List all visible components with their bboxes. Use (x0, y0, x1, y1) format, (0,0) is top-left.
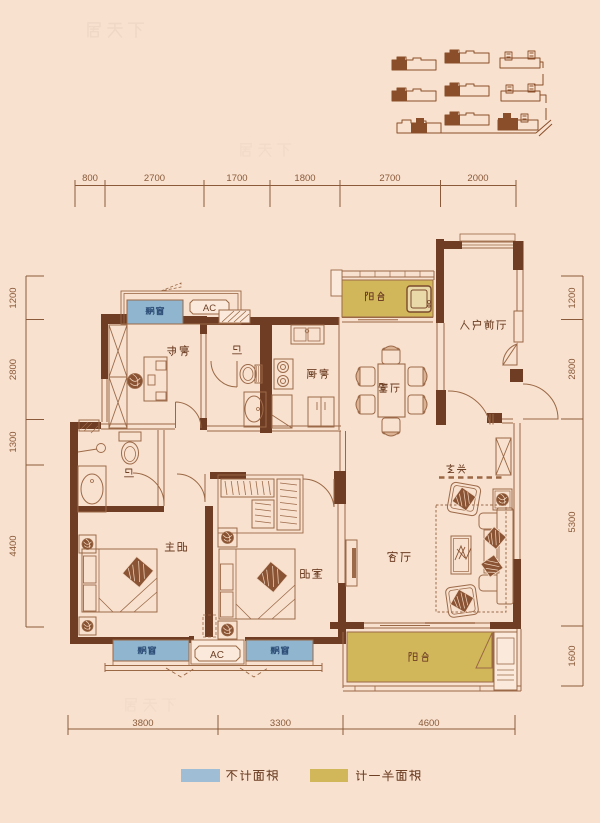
svg-text:1800: 1800 (294, 173, 315, 184)
svg-text:2800: 2800 (8, 359, 19, 380)
svg-text:2000: 2000 (467, 173, 488, 184)
svg-text:800: 800 (82, 173, 98, 184)
svg-text:AC: AC (210, 650, 224, 661)
svg-text:1600: 1600 (567, 645, 578, 666)
svg-text:2800: 2800 (567, 358, 578, 379)
svg-text:1200: 1200 (8, 287, 19, 308)
svg-text:1700: 1700 (226, 173, 247, 184)
svg-text:5300: 5300 (567, 511, 578, 532)
svg-text:2700: 2700 (379, 173, 400, 184)
svg-text:4600: 4600 (418, 718, 439, 729)
svg-text:2700: 2700 (144, 173, 165, 184)
svg-text:3800: 3800 (132, 718, 153, 729)
svg-text:1200: 1200 (567, 287, 578, 308)
svg-text:1300: 1300 (8, 431, 19, 452)
svg-text:3300: 3300 (270, 718, 291, 729)
svg-text:4400: 4400 (8, 535, 19, 556)
svg-text:AC: AC (203, 303, 216, 314)
